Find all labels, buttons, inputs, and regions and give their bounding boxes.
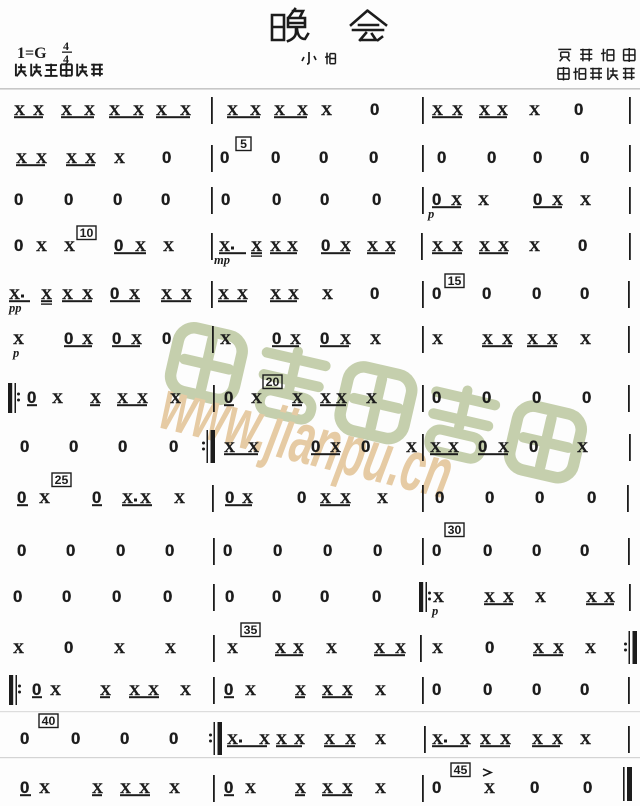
svg-text:0: 0	[311, 437, 320, 456]
svg-text:0: 0	[483, 680, 492, 699]
svg-text:0: 0	[163, 587, 172, 606]
svg-text:0: 0	[580, 284, 589, 303]
svg-text:0: 0	[319, 148, 328, 167]
svg-text:X: X	[460, 731, 471, 748]
svg-text:0: 0	[13, 587, 22, 606]
svg-text:0: 0	[370, 284, 379, 303]
svg-text:mp: mp	[214, 253, 230, 267]
svg-text:X: X	[478, 192, 489, 209]
svg-text:X: X	[245, 780, 256, 797]
svg-text:0: 0	[221, 190, 230, 209]
svg-text:0: 0	[532, 680, 541, 699]
svg-text:0: 0	[27, 388, 36, 407]
svg-text:5: 5	[240, 137, 247, 151]
svg-text:0: 0	[432, 680, 441, 699]
svg-text:0: 0	[169, 729, 178, 748]
svg-text:0: 0	[435, 488, 444, 507]
svg-text:0: 0	[120, 729, 129, 748]
svg-text:0: 0	[580, 680, 589, 699]
svg-text:0: 0	[482, 388, 491, 407]
svg-text:0: 0	[361, 437, 370, 456]
svg-text:X: X	[375, 780, 386, 797]
svg-text:X: X	[13, 640, 24, 657]
svg-text:0: 0	[225, 488, 234, 507]
svg-text:X: X	[432, 640, 443, 657]
svg-text:0: 0	[112, 329, 121, 348]
svg-text:0: 0	[485, 638, 494, 657]
svg-text:X: X	[406, 439, 417, 456]
svg-text:0: 0	[71, 729, 80, 748]
svg-text:0: 0	[580, 541, 589, 560]
svg-text:0: 0	[587, 488, 596, 507]
svg-text:4: 4	[63, 39, 69, 53]
svg-text:0: 0	[224, 680, 233, 699]
svg-text:X: X	[529, 102, 540, 119]
svg-text:0: 0	[64, 638, 73, 657]
svg-text:0: 0	[373, 541, 382, 560]
svg-text:0: 0	[224, 778, 233, 797]
svg-text:0: 0	[116, 541, 125, 560]
svg-text:X: X	[484, 780, 495, 797]
svg-text:X: X	[227, 640, 238, 657]
svg-text:0: 0	[20, 437, 29, 456]
svg-text:20: 20	[266, 375, 280, 389]
svg-text:0: 0	[320, 587, 329, 606]
svg-text:0: 0	[165, 541, 174, 560]
svg-text:0: 0	[20, 778, 29, 797]
svg-text:0: 0	[369, 148, 378, 167]
svg-text:X: X	[432, 331, 443, 348]
svg-text:X: X	[370, 331, 381, 348]
svg-text:0: 0	[529, 437, 538, 456]
svg-text:0: 0	[574, 100, 583, 119]
svg-text:0: 0	[321, 236, 330, 255]
svg-text:0: 0	[14, 236, 23, 255]
svg-text:0: 0	[20, 729, 29, 748]
svg-text:0: 0	[272, 587, 281, 606]
svg-text:0: 0	[582, 388, 591, 407]
svg-text:X: X	[163, 238, 174, 255]
svg-text:0: 0	[532, 284, 541, 303]
svg-text:0: 0	[66, 541, 75, 560]
svg-text:0: 0	[432, 284, 441, 303]
svg-text:0: 0	[17, 541, 26, 560]
svg-text:0: 0	[483, 541, 492, 560]
svg-text:X: X	[170, 390, 181, 407]
svg-text:45: 45	[454, 763, 468, 777]
svg-text:0: 0	[17, 488, 26, 507]
svg-text:0: 0	[432, 778, 441, 797]
svg-text:0: 0	[478, 437, 487, 456]
svg-text:X: X	[174, 490, 185, 507]
svg-text:0: 0	[432, 541, 441, 560]
svg-text:15: 15	[448, 274, 462, 288]
svg-text:40: 40	[42, 714, 56, 728]
svg-text:0: 0	[432, 388, 441, 407]
svg-text:0: 0	[583, 778, 592, 797]
svg-text:X: X	[36, 238, 47, 255]
svg-text:0: 0	[62, 587, 71, 606]
svg-text:X: X	[326, 640, 337, 657]
svg-text:0: 0	[224, 388, 233, 407]
svg-text:0: 0	[272, 190, 281, 209]
svg-text:0: 0	[533, 190, 542, 209]
svg-text:0: 0	[272, 329, 281, 348]
svg-text:0: 0	[271, 148, 280, 167]
svg-text:X: X	[377, 490, 388, 507]
svg-text:X: X	[259, 731, 270, 748]
svg-text:0: 0	[64, 329, 73, 348]
svg-text:X: X	[529, 238, 540, 255]
svg-text:0: 0	[532, 541, 541, 560]
svg-text:0: 0	[273, 541, 282, 560]
svg-text:0: 0	[64, 190, 73, 209]
svg-text:0: 0	[485, 488, 494, 507]
svg-text:0: 0	[114, 236, 123, 255]
svg-text:0: 0	[482, 284, 491, 303]
svg-text:X: X	[322, 286, 333, 303]
svg-text:X: X	[577, 439, 588, 456]
svg-text:25: 25	[55, 473, 69, 487]
svg-text:30: 30	[448, 523, 462, 537]
svg-text:p: p	[427, 207, 434, 221]
svg-text:0: 0	[161, 190, 170, 209]
svg-text:X: X	[375, 731, 386, 748]
svg-text:0: 0	[297, 488, 306, 507]
svg-text:0: 0	[487, 148, 496, 167]
svg-text:0: 0	[535, 488, 544, 507]
svg-text:0: 0	[580, 148, 589, 167]
svg-text:X: X	[39, 490, 50, 507]
svg-text:0: 0	[169, 437, 178, 456]
svg-text:X: X	[180, 682, 191, 699]
svg-text:0: 0	[162, 329, 171, 348]
svg-text:0: 0	[32, 680, 41, 699]
svg-text:p: p	[12, 346, 19, 360]
svg-text:X: X	[375, 682, 386, 699]
svg-text:0: 0	[110, 284, 119, 303]
svg-text:0: 0	[437, 148, 446, 167]
svg-text:X: X	[114, 640, 125, 657]
svg-text:X: X	[165, 640, 176, 657]
svg-text:35: 35	[244, 623, 258, 637]
svg-text:0: 0	[323, 541, 332, 560]
svg-text:0: 0	[162, 148, 171, 167]
svg-text:0: 0	[578, 236, 587, 255]
svg-text:0: 0	[533, 148, 542, 167]
svg-text:0: 0	[225, 587, 234, 606]
svg-text:X: X	[52, 390, 63, 407]
svg-text:X: X	[64, 238, 75, 255]
svg-text:0: 0	[320, 329, 329, 348]
svg-text:X: X	[580, 331, 591, 348]
svg-text:p: p	[431, 604, 438, 618]
svg-text:X: X	[535, 589, 546, 606]
svg-text:0: 0	[220, 148, 229, 167]
svg-text:X: X	[366, 390, 377, 407]
svg-text:0: 0	[14, 190, 23, 209]
svg-text:pp: pp	[8, 301, 22, 315]
svg-text:10: 10	[80, 226, 94, 240]
svg-text:0: 0	[223, 541, 232, 560]
svg-text:X: X	[169, 780, 180, 797]
svg-text:0: 0	[372, 190, 381, 209]
svg-text:0: 0	[92, 488, 101, 507]
svg-text:X: X	[321, 102, 332, 119]
svg-text:X: X	[220, 331, 231, 348]
svg-text:0: 0	[372, 587, 381, 606]
svg-text:0: 0	[320, 190, 329, 209]
svg-text:0: 0	[530, 778, 539, 797]
svg-text:X: X	[245, 682, 256, 699]
svg-text:X: X	[251, 390, 262, 407]
svg-text:0: 0	[532, 388, 541, 407]
svg-text:0: 0	[370, 100, 379, 119]
svg-text:X: X	[585, 640, 596, 657]
svg-text:X: X	[114, 150, 125, 167]
svg-text:X: X	[39, 780, 50, 797]
svg-text:X: X	[580, 192, 591, 209]
svg-text:X: X	[580, 731, 591, 748]
svg-text:0: 0	[112, 587, 121, 606]
svg-text:0: 0	[113, 190, 122, 209]
svg-text:0: 0	[118, 437, 127, 456]
svg-text:X: X	[50, 682, 61, 699]
svg-text:1=G: 1=G	[17, 45, 47, 62]
svg-text:0: 0	[69, 437, 78, 456]
